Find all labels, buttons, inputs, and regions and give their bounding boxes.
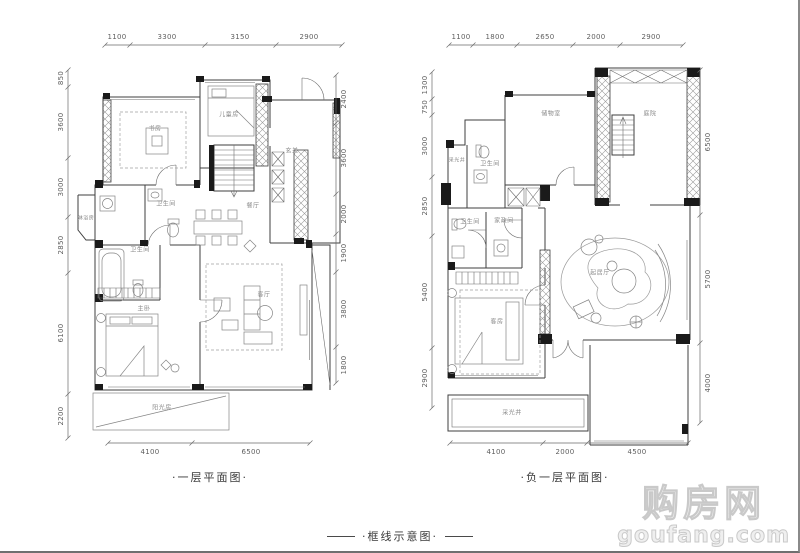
- room-label-sunroom: 阳光房: [152, 403, 172, 412]
- dim-label: 750: [421, 100, 429, 114]
- dim-label: 2200: [57, 406, 65, 425]
- footer-caption-text: ·框线示意图·: [362, 528, 438, 544]
- dim-label: 1900: [340, 243, 348, 262]
- dim-label: 6100: [57, 323, 65, 342]
- dim-label: 2850: [57, 235, 65, 254]
- left-plan-caption: ·一层平面图·: [172, 469, 248, 485]
- footer-caption: ·框线示意图·: [327, 528, 473, 544]
- dim-label: 2000: [586, 33, 605, 41]
- dim-label: 2900: [641, 33, 660, 41]
- dim-label: 3150: [230, 33, 249, 41]
- room-label-bath1: 卫生间: [156, 199, 176, 208]
- dim-label: 2000: [340, 204, 348, 223]
- room-label-kids: 儿童房: [219, 110, 239, 119]
- right-plan-caption: ·负一层平面图·: [521, 469, 610, 485]
- dim-label: 1800: [485, 33, 504, 41]
- dim-label: 2650: [535, 33, 554, 41]
- room-label-lightwell-1: 采光井: [449, 157, 466, 164]
- room-label-foyer: 玄关: [285, 146, 298, 155]
- room-label-lightwell-2: 采光井: [502, 408, 522, 417]
- room-label-dining: 餐厅: [246, 201, 259, 210]
- room-label-bath2: 卫生间: [130, 245, 150, 254]
- room-label-study: 书房: [148, 124, 161, 133]
- dash-line: [327, 536, 355, 537]
- dim-label: 3600: [57, 112, 65, 131]
- floorplan-linework: [0, 0, 800, 553]
- watermark-en-text: goufang.com: [617, 524, 790, 547]
- floorplan-sheet: 1100 3300 3150 2900 850 3600 3000 2850 6…: [0, 0, 800, 553]
- dim-label: 4500: [627, 448, 646, 456]
- room-label-guest: 客房: [490, 317, 503, 326]
- left-plan-hatch-walls: [103, 84, 340, 240]
- dim-label: 3600: [340, 148, 348, 167]
- dim-label: 2900: [299, 33, 318, 41]
- room-label-bath-b2: 卫生间: [460, 217, 480, 226]
- room-label-shower: 淋浴房: [78, 215, 95, 222]
- dim-label: 1800: [340, 355, 348, 374]
- dim-label: 1100: [451, 33, 470, 41]
- right-plan-black-walls: [441, 68, 700, 434]
- dim-label: 850: [57, 71, 65, 85]
- dim-label: 2000: [555, 448, 574, 456]
- dim-label: 4100: [486, 448, 505, 456]
- dim-label: 2400: [340, 89, 348, 108]
- room-label-master: 主卧: [137, 304, 150, 313]
- room-label-bath-b1: 卫生间: [480, 159, 500, 168]
- dim-label: 5400: [421, 282, 429, 301]
- dim-label: 3000: [421, 136, 429, 155]
- room-label-lounge: 起居厅: [590, 268, 610, 277]
- watermark: 购房网 goufang.com: [617, 485, 790, 547]
- room-label-living: 客厅: [257, 290, 270, 299]
- dim-label: 6500: [241, 448, 260, 456]
- dim-label: 4000: [704, 373, 712, 392]
- dim-label: 3300: [157, 33, 176, 41]
- dash-line: [445, 536, 473, 537]
- right-plan-walls: [448, 68, 700, 445]
- dim-label: 4100: [140, 448, 159, 456]
- dim-label: 2850: [421, 196, 429, 215]
- right-plan-details: [452, 70, 687, 441]
- dim-label: 2900: [421, 368, 429, 387]
- dim-label: 3800: [340, 299, 348, 318]
- dim-label: 5700: [704, 269, 712, 288]
- dim-label: 6500: [704, 132, 712, 151]
- dim-label: 1300: [421, 75, 429, 94]
- watermark-cn-text: 购房网: [617, 485, 790, 524]
- dim-label: 1100: [107, 33, 126, 41]
- dim-label: 3000: [57, 177, 65, 196]
- room-label-courtyard: 庭院: [643, 109, 656, 118]
- room-label-storage: 储物室: [541, 109, 561, 118]
- room-label-utility: 家政间: [494, 216, 514, 225]
